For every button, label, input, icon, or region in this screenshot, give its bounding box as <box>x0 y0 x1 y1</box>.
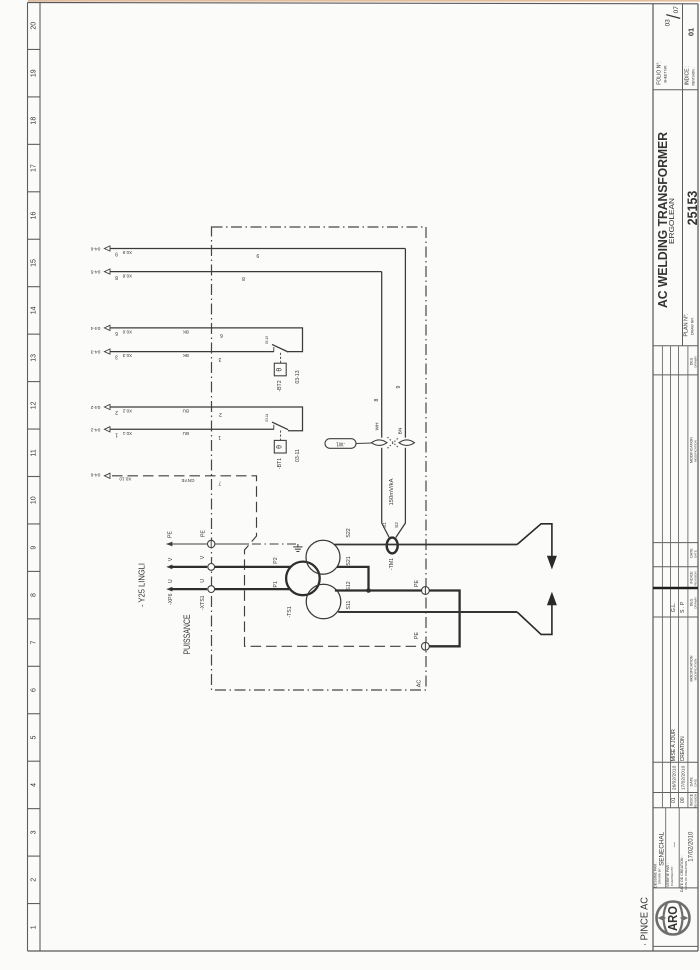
svg-text:04-4: 04-4 <box>90 325 100 331</box>
svg-text:G.L.: G.L. <box>671 602 677 612</box>
svg-text:FOLIO N°:: FOLIO N°: <box>657 61 663 84</box>
svg-text:S2: S2 <box>394 522 400 528</box>
svg-text:-XTS1: -XTS1 <box>200 595 206 610</box>
svg-text:DATE: DATE <box>693 779 697 787</box>
svg-text:CHECKED BY :: CHECKED BY : <box>670 865 674 886</box>
svg-text:PE: PE <box>414 632 420 639</box>
svg-text:13: 13 <box>30 354 37 362</box>
svg-text:1: 1 <box>115 431 118 437</box>
svg-text:ERGOLEAN: ERGOLEAN <box>669 198 676 244</box>
svg-text:6: 6 <box>30 688 37 692</box>
svg-text:2: 2 <box>30 878 37 882</box>
svg-text:1: 1 <box>218 434 221 440</box>
svg-text:04-3: 04-3 <box>90 349 100 355</box>
svg-text:9: 9 <box>256 252 259 258</box>
svg-text:2: 2 <box>219 411 222 417</box>
svg-text:DATE: DATE <box>693 550 697 558</box>
svg-text:U: U <box>168 579 174 583</box>
svg-text:ARO: ARO <box>666 906 680 931</box>
svg-text:S21: S21 <box>346 556 352 565</box>
svg-text:7: 7 <box>218 480 221 486</box>
svg-text:16: 16 <box>30 212 37 220</box>
svg-text:07: 07 <box>673 6 680 14</box>
svg-text:MODIFICATION: MODIFICATION <box>693 659 697 681</box>
svg-text:5: 5 <box>30 735 37 739</box>
svg-text:θ: θ <box>277 368 284 372</box>
svg-text:PUISSANCE: PUISSANCE <box>182 615 193 655</box>
svg-text:GNYE: GNYE <box>181 478 194 483</box>
svg-text:BU: BU <box>183 409 189 414</box>
svg-text:INDICE :: INDICE : <box>685 66 691 86</box>
svg-text:P2: P2 <box>273 557 279 563</box>
svg-text:3: 3 <box>30 830 37 834</box>
svg-text:REVISION :: REVISION : <box>692 67 696 85</box>
svg-text:-W1: -W1 <box>336 441 345 447</box>
svg-text:12: 12 <box>30 401 37 409</box>
svg-text:WH: WH <box>375 422 381 431</box>
svg-text:03-13: 03-13 <box>295 370 301 383</box>
svg-text:X0.9: X0.9 <box>122 250 132 255</box>
svg-text:04-2: 04-2 <box>90 404 100 410</box>
svg-text:V: V <box>200 555 206 559</box>
svg-text:- Y25 LINGLI: - Y25 LINGLI <box>138 563 147 607</box>
svg-text:4: 4 <box>30 783 37 787</box>
svg-text:AC WELDING TRANSFORMER: AC WELDING TRANSFORMER <box>655 131 670 308</box>
svg-text:9: 9 <box>30 546 37 550</box>
svg-text:00: 00 <box>680 797 686 803</box>
svg-text:17/02/2010: 17/02/2010 <box>688 831 695 861</box>
svg-text:V: V <box>168 557 174 561</box>
svg-text:19: 19 <box>30 69 37 77</box>
svg-text:CREATION: CREATION <box>680 736 686 761</box>
svg-text:8: 8 <box>115 274 118 280</box>
svg-text:9: 9 <box>396 385 402 388</box>
svg-text:S11: S11 <box>346 600 352 609</box>
svg-text:8: 8 <box>242 275 245 281</box>
svg-text:9: 9 <box>115 251 118 257</box>
svg-text:03: 03 <box>664 19 671 27</box>
svg-text:S12: S12 <box>346 581 352 590</box>
svg-text:· PINCE AC: · PINCE AC <box>639 897 650 946</box>
svg-text:REVISION: REVISION <box>693 571 697 585</box>
svg-text:8: 8 <box>30 593 37 597</box>
svg-text:1: 1 <box>30 925 37 929</box>
svg-text:PE: PE <box>167 531 173 538</box>
svg-text:2: 2 <box>115 409 118 415</box>
svg-text:θ: θ <box>277 445 284 449</box>
svg-text:26/02/2010: 26/02/2010 <box>671 765 676 790</box>
svg-text:01: 01 <box>671 797 677 803</box>
svg-text:X0.3: X0.3 <box>122 353 132 358</box>
svg-text:MISE A JOUR: MISE A JOUR <box>671 729 677 761</box>
svg-text:-XP6: -XP6 <box>168 593 174 605</box>
svg-text:25153: 25153 <box>684 191 700 226</box>
svg-text:10: 10 <box>30 496 37 504</box>
svg-text:SHEET NR:: SHEET NR: <box>664 65 668 83</box>
svg-text:20: 20 <box>30 22 37 30</box>
svg-text:REVISION: REVISION <box>693 794 697 808</box>
svg-text:S . P: S . P <box>680 601 686 613</box>
svg-text:04-5: 04-5 <box>90 269 100 275</box>
svg-text:04-6: 04-6 <box>90 471 100 477</box>
svg-text:6: 6 <box>115 330 118 336</box>
svg-text:PE: PE <box>414 580 420 587</box>
svg-text:3: 3 <box>115 354 118 360</box>
svg-text:DRAWN BY :: DRAWN BY : <box>657 866 661 884</box>
svg-text:—: — <box>672 842 678 847</box>
svg-text:01: 01 <box>686 28 695 36</box>
svg-text:DRAWN: DRAWN <box>693 356 697 367</box>
svg-text:6: 6 <box>220 332 223 338</box>
svg-text:X0.2: X0.2 <box>122 409 132 414</box>
svg-text:-BT1: -BT1 <box>277 458 283 469</box>
svg-text:-TM1: -TM1 <box>389 558 395 570</box>
svg-text:17/02/2010: 17/02/2010 <box>681 765 686 790</box>
svg-text:BK: BK <box>182 353 189 358</box>
svg-text:03-11: 03-11 <box>295 449 301 462</box>
svg-text:04-2: 04-2 <box>90 426 100 432</box>
svg-text:X0.8: X0.8 <box>122 273 132 278</box>
svg-text:X0.10: X0.10 <box>119 476 131 481</box>
svg-text:17: 17 <box>30 164 37 172</box>
svg-text:BN: BN <box>398 427 404 434</box>
svg-text:DRAWN: DRAWN <box>693 597 697 608</box>
svg-text:11: 11 <box>30 449 37 456</box>
svg-text:7: 7 <box>30 641 37 645</box>
svg-text:PLAN N°:: PLAN N°: <box>684 313 690 336</box>
svg-text:150mV/kA: 150mV/kA <box>389 478 395 506</box>
svg-text:S22: S22 <box>346 528 352 537</box>
svg-text:03-13: 03-13 <box>265 336 269 344</box>
svg-text:04-6: 04-6 <box>90 246 100 252</box>
svg-text:DATE OF CREATION :: DATE OF CREATION : <box>684 859 688 890</box>
svg-text:MODIFICATION: MODIFICATION <box>693 440 697 462</box>
svg-text:18: 18 <box>30 117 37 125</box>
svg-text:3: 3 <box>218 356 221 362</box>
svg-text:-BT2: -BT2 <box>277 380 283 391</box>
svg-text:SENECHAL: SENECHAL <box>658 831 665 865</box>
svg-text:-TS1: -TS1 <box>287 606 293 617</box>
svg-text:BU: BU <box>183 431 189 436</box>
svg-text:P1: P1 <box>273 581 279 587</box>
svg-text:AC: AC <box>417 680 423 688</box>
svg-text:BK: BK <box>182 330 189 335</box>
svg-text:8: 8 <box>374 398 380 401</box>
svg-text:PE: PE <box>200 530 206 537</box>
svg-text:S1: S1 <box>382 522 388 528</box>
svg-text:X0.1: X0.1 <box>122 431 132 436</box>
svg-text:14: 14 <box>30 306 37 314</box>
svg-text:03-11: 03-11 <box>265 414 269 422</box>
svg-text:X0.6: X0.6 <box>122 330 132 335</box>
svg-text:DRAW NR:: DRAW NR: <box>690 317 694 335</box>
svg-text:15: 15 <box>30 259 37 267</box>
svg-text:U: U <box>200 579 206 583</box>
